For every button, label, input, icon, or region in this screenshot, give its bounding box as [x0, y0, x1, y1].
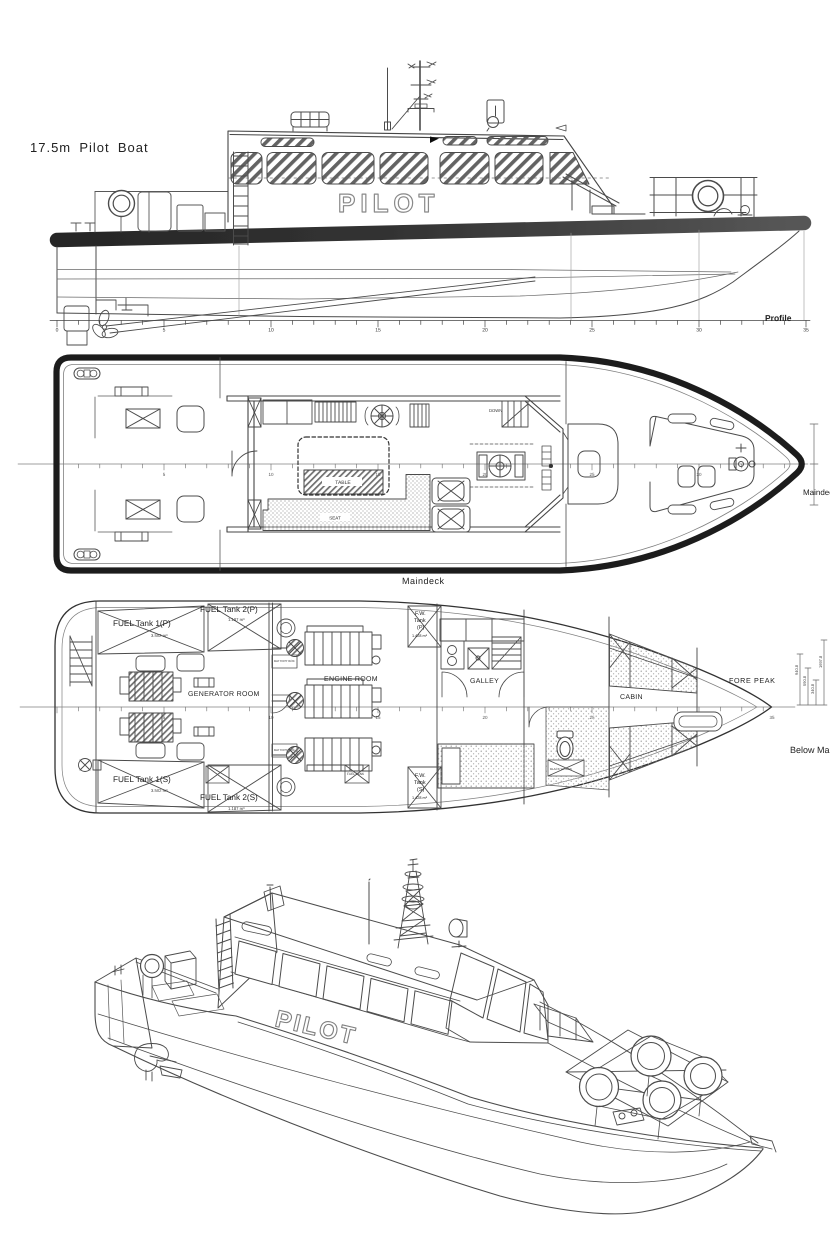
svg-text:FUEL Tank 2(P): FUEL Tank 2(P)	[200, 605, 258, 614]
svg-text:(S): (S)	[417, 787, 425, 793]
svg-text:Below Maindeck: Below Maindeck	[790, 745, 830, 755]
svg-text:FUEL TANK: FUEL TANK	[347, 772, 365, 776]
svg-text:25: 25	[589, 472, 595, 477]
svg-text:5: 5	[163, 328, 166, 334]
svg-text:FUEL Tank 1(S): FUEL Tank 1(S)	[113, 775, 171, 784]
svg-text:FUEL Tank 2(S): FUEL Tank 2(S)	[200, 793, 258, 802]
svg-text:30: 30	[696, 472, 702, 477]
svg-text:35: 35	[769, 715, 775, 720]
svg-text:1697.8: 1697.8	[818, 655, 823, 668]
svg-text:Maindeck: Maindeck	[402, 576, 445, 586]
svg-text:F.W.: F.W.	[415, 773, 426, 779]
svg-text:20: 20	[482, 328, 488, 334]
svg-text:15: 15	[375, 715, 381, 720]
svg-text:FUEL Tank 1(P): FUEL Tank 1(P)	[113, 619, 171, 628]
svg-text:CABIN: CABIN	[620, 694, 643, 701]
svg-text:(P): (P)	[417, 625, 425, 631]
svg-text:Tank: Tank	[414, 618, 426, 624]
svg-text:590.8: 590.8	[802, 675, 807, 686]
svg-text:10: 10	[268, 328, 274, 334]
svg-text:Tank: Tank	[414, 780, 426, 786]
svg-text:FORE PEAK: FORE PEAK	[729, 676, 776, 685]
svg-text:30: 30	[696, 328, 702, 334]
svg-text:TABLE: TABLE	[335, 480, 351, 486]
svg-text:940.8: 940.8	[794, 664, 799, 675]
svg-text:25: 25	[589, 328, 595, 334]
svg-text:Maindeck: Maindeck	[803, 488, 830, 497]
svg-text:35: 35	[803, 328, 809, 334]
svg-text:SEAT: SEAT	[329, 516, 341, 521]
svg-text:10: 10	[268, 472, 274, 477]
svg-text:1.428 m³: 1.428 m³	[412, 796, 428, 800]
svg-text:15: 15	[375, 328, 381, 334]
svg-text:17.5m Pilot Boat: 17.5m Pilot Boat	[30, 140, 149, 155]
svg-text:3.502 m³: 3.502 m³	[151, 633, 168, 638]
svg-text:BATTERY BOX: BATTERY BOX	[274, 659, 295, 663]
svg-text:BLACK W.TANK: BLACK W.TANK	[550, 767, 572, 771]
svg-text:0: 0	[56, 328, 59, 334]
svg-text:PILOT: PILOT	[338, 188, 440, 218]
svg-text:ENGINE ROOM: ENGINE ROOM	[324, 676, 378, 683]
svg-text:340.8: 340.8	[810, 683, 815, 694]
svg-text:1.428 m³: 1.428 m³	[412, 634, 428, 638]
svg-text:Profile: Profile	[765, 313, 792, 323]
svg-text:GALLEY: GALLEY	[470, 678, 499, 685]
svg-text:GENERATOR ROOM: GENERATOR ROOM	[188, 691, 260, 698]
svg-text:20: 20	[482, 715, 488, 720]
svg-text:3.502 m³: 3.502 m³	[151, 788, 168, 793]
svg-text:F.W.: F.W.	[415, 611, 426, 617]
svg-text:DOWN: DOWN	[489, 408, 502, 413]
svg-text:1.187 m³: 1.187 m³	[228, 806, 245, 811]
svg-text:1.187 m³: 1.187 m³	[228, 617, 245, 622]
